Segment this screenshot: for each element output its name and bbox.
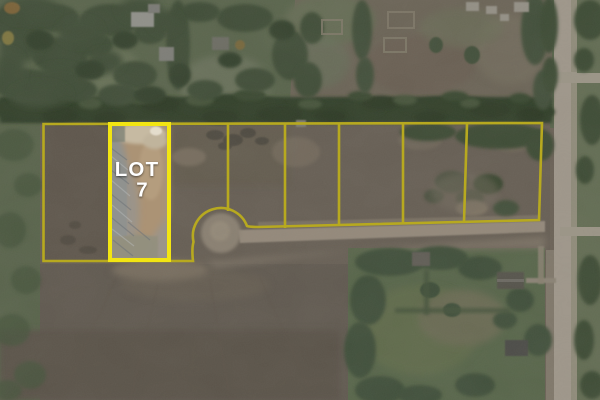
svg-text:7: 7 — [136, 179, 147, 202]
